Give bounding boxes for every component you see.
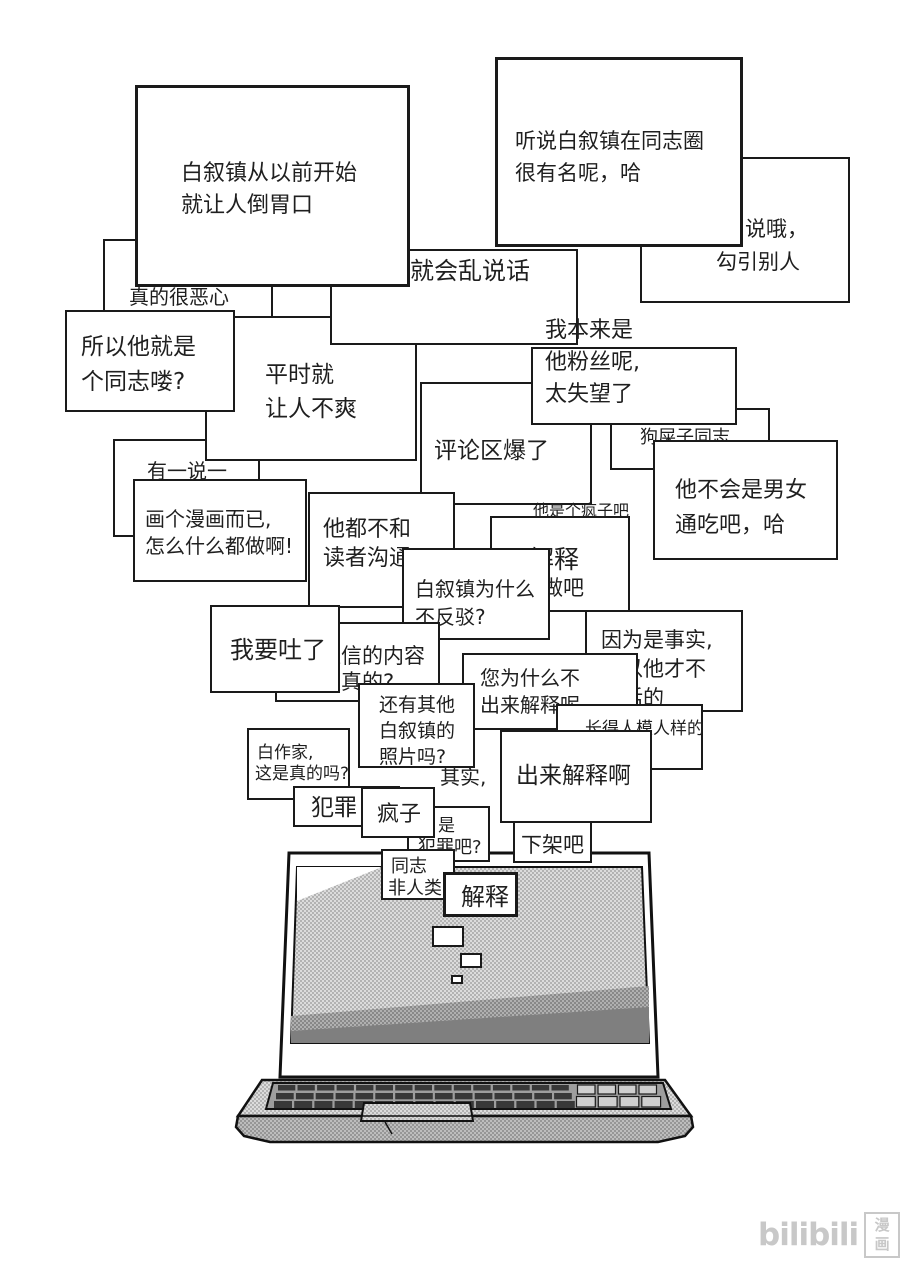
keyboard-key bbox=[395, 1093, 413, 1099]
keyboard-key bbox=[278, 1085, 295, 1091]
keyboard-key bbox=[537, 1101, 555, 1108]
keyboard-key bbox=[376, 1085, 393, 1091]
keyboard-key bbox=[642, 1097, 661, 1108]
keyboard-key bbox=[276, 1093, 294, 1099]
keyboard-key bbox=[476, 1101, 494, 1108]
keyboard-key bbox=[473, 1085, 490, 1091]
keyboard-key bbox=[578, 1085, 596, 1094]
keyboard-key bbox=[337, 1085, 354, 1091]
keyboard-key bbox=[335, 1101, 353, 1108]
keyboard-key bbox=[435, 1093, 453, 1099]
keyboard-key bbox=[496, 1101, 514, 1108]
keyboard-key bbox=[514, 1093, 532, 1099]
laptop-illustration bbox=[0, 0, 900, 1272]
keyboard-key bbox=[298, 1085, 315, 1091]
manhua-badge: 漫画 bbox=[864, 1212, 900, 1258]
keyboard-key bbox=[552, 1085, 569, 1091]
keyboard-key bbox=[415, 1085, 432, 1091]
keyboard-key bbox=[434, 1085, 451, 1091]
keyboard-key bbox=[475, 1093, 493, 1099]
keyboard-key bbox=[620, 1097, 639, 1108]
keyboard-key bbox=[493, 1085, 510, 1091]
keyboard-key bbox=[532, 1085, 549, 1091]
keyboard-key bbox=[495, 1093, 513, 1099]
keyboard-key bbox=[294, 1101, 312, 1108]
keyboard-key bbox=[395, 1085, 412, 1091]
keyboard-key bbox=[375, 1093, 393, 1099]
keyboard-key bbox=[314, 1101, 332, 1108]
keyboard-key bbox=[598, 1097, 617, 1108]
keyboard-key bbox=[317, 1085, 334, 1091]
keyboard-key bbox=[356, 1085, 373, 1091]
keyboard-key bbox=[516, 1101, 534, 1108]
keyboard-key bbox=[512, 1085, 529, 1091]
keyboard-key bbox=[296, 1093, 314, 1099]
keyboard-key bbox=[619, 1085, 637, 1094]
keyboard-key bbox=[534, 1093, 552, 1099]
keyboard-key bbox=[274, 1101, 292, 1108]
keyboard-key bbox=[557, 1101, 575, 1108]
keyboard-key bbox=[455, 1093, 473, 1099]
watermark: bilibili 漫画 bbox=[758, 1212, 900, 1258]
keyboard-key bbox=[639, 1085, 657, 1094]
keyboard-key bbox=[598, 1085, 616, 1094]
keyboard-key bbox=[554, 1093, 572, 1099]
bilibili-logo: bilibili bbox=[758, 1217, 858, 1253]
comic-page: 真的很恶心有一说一平时就让人不爽所以他就是个同志喽?就会乱说话画个漫画而已,怎么… bbox=[0, 0, 900, 1272]
keyboard-key bbox=[415, 1093, 433, 1099]
keyboard-key bbox=[356, 1093, 374, 1099]
laptop-touchpad bbox=[361, 1103, 473, 1121]
keyboard-key bbox=[454, 1085, 471, 1091]
keyboard-key bbox=[577, 1097, 596, 1108]
keyboard-key bbox=[316, 1093, 334, 1099]
keyboard-key bbox=[336, 1093, 354, 1099]
